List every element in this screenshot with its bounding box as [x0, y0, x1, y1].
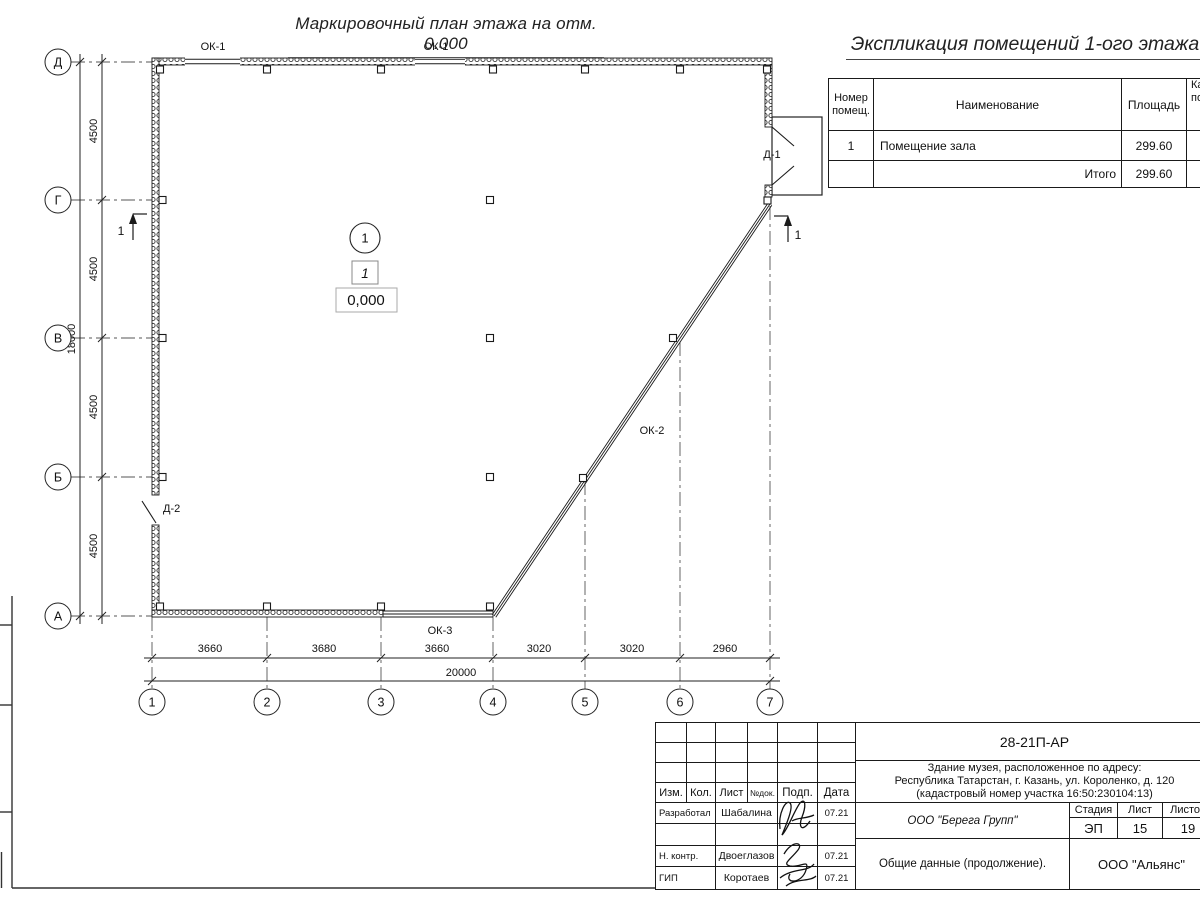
wall-right-upper — [765, 65, 772, 127]
tb-rev-cell — [687, 743, 716, 763]
room-type-mark: 1 — [361, 266, 369, 281]
expl-header-category-l2: помещения — [1191, 92, 1200, 105]
label-d2: Д-2 — [163, 503, 180, 515]
tb-contractor: ООО "Альянс" — [1070, 839, 1200, 889]
window-ok3-glazing — [383, 611, 493, 617]
door-leaves — [142, 127, 794, 523]
walls — [152, 58, 772, 617]
tb-rev-cell — [818, 763, 856, 783]
tb-header-izm: Изм. — [656, 783, 687, 803]
room-marker: 1 1 0,000 — [336, 223, 397, 312]
label-ok2: ОК-2 — [640, 425, 665, 437]
expl-total-category — [1187, 161, 1200, 187]
tb-object-address: Здание музея, расположенное по адресу: Р… — [856, 761, 1200, 803]
label-ok3: ОК-3 — [428, 625, 453, 637]
tb-name-developer: Шабалина — [716, 803, 778, 824]
dim-4500-4: 4500 — [88, 534, 100, 558]
tb-doc-number: 28-21П-АР — [856, 723, 1200, 761]
tb-rev-cell — [656, 723, 687, 743]
axis-col-3: 3 — [378, 696, 385, 710]
tb-rev-cell — [687, 723, 716, 743]
wall-right-stub — [765, 185, 772, 197]
tb-rev-cell — [818, 743, 856, 763]
axis-col-5: 5 — [582, 696, 589, 710]
tb-rev-cell — [716, 763, 748, 783]
drawing-sheet: { "plan": { "title": "Маркировочный план… — [0, 0, 1200, 900]
window-ok2-glazing — [492, 203, 772, 617]
expl-header-number: Номер помещ. — [829, 79, 874, 131]
tb-sheets-value: 19 — [1163, 818, 1200, 839]
expl-row1-area: 299.60 — [1122, 131, 1187, 161]
dim-3660-1: 3660 — [198, 643, 222, 655]
tb-sheet-value: 15 — [1118, 818, 1163, 839]
axis-col-1: 1 — [149, 696, 156, 710]
tb-name-ncontrol: Двоеглазов — [716, 846, 778, 867]
tb-date-ncontrol: 07.21 — [818, 846, 856, 867]
grid-axes-lines — [71, 62, 770, 689]
plan-title: Маркировочный план этажа на отм. 0.000 — [288, 14, 604, 58]
axis-col-2: 2 — [264, 696, 271, 710]
tb-rev-cell — [656, 763, 687, 783]
section-arrow-left — [129, 213, 137, 224]
expl-header-name: Наименование — [874, 79, 1122, 131]
expl-total-label: Итого — [874, 161, 1122, 187]
axis-col-6: 6 — [677, 696, 684, 710]
signature-ncontrol-gip — [776, 838, 820, 890]
dim-3020-1: 3020 — [527, 643, 551, 655]
expl-row1-category — [1187, 131, 1200, 161]
tb-date-gip: 07.21 — [818, 867, 856, 889]
wall-left-upper — [152, 58, 159, 495]
tb-header-kol: Кол. — [687, 783, 716, 803]
title-block: Изм. Кол. Лист №док. Подп. Дата Разработ… — [655, 722, 1200, 890]
opening-labels: ОК-1 ОК-1 ОК-2 ОК-3 Д-1 Д-2 — [163, 41, 781, 637]
section-labels: 1 1 — [118, 224, 802, 242]
tb-header-date: Дата — [818, 783, 856, 803]
expl-header-area: Площадь — [1122, 79, 1187, 131]
section-label-right: 1 — [795, 228, 802, 242]
room-elevation: 0,000 — [347, 292, 385, 309]
tb-doc-title: Общие данные (продолжение). — [856, 839, 1070, 889]
tb-address-line2: Республика Татарстан, г. Казань, ул. Кор… — [895, 775, 1175, 788]
tb-address-line1: Здание музея, расположенное по адресу: — [928, 762, 1142, 775]
tb-sheet-label: Лист — [1118, 803, 1163, 818]
tb-rev-cell — [778, 723, 818, 743]
dimension-lines — [76, 54, 780, 685]
expl-row1-name: Помещение зала — [874, 131, 1122, 161]
tb-rev-cell — [748, 723, 778, 743]
label-d1: Д-1 — [763, 149, 780, 161]
expl-header-number-l2: помещ. — [832, 105, 870, 118]
tb-stage-value: ЭП — [1070, 818, 1118, 839]
tb-date-empty — [818, 824, 856, 846]
tb-name-gip: Коротаев — [716, 867, 778, 889]
axis-row-b: Б — [54, 471, 62, 485]
tb-date-developer: 07.21 — [818, 803, 856, 824]
tb-rev-cell — [778, 763, 818, 783]
section-marks — [129, 213, 792, 242]
tb-rev-cell — [748, 743, 778, 763]
expl-row1-number: 1 — [829, 131, 874, 161]
expl-total-spacer — [829, 161, 874, 187]
column-markers — [157, 66, 772, 610]
dim-3680: 3680 — [312, 643, 336, 655]
axis-col-4: 4 — [490, 696, 497, 710]
dim-4500-1: 4500 — [88, 119, 100, 143]
dim-3020-2: 3020 — [620, 643, 644, 655]
dim-3660-2: 3660 — [425, 643, 449, 655]
tb-role-empty — [656, 824, 716, 846]
axis-row-v: В — [54, 332, 62, 346]
tb-rev-cell — [687, 763, 716, 783]
tb-rev-cell — [716, 743, 748, 763]
tb-rev-cell — [656, 743, 687, 763]
axis-row-a: А — [54, 610, 63, 624]
dim-2960: 2960 — [713, 643, 737, 655]
explication-table: Номер помещ. Наименование Площадь Катего… — [828, 78, 1200, 188]
tb-header-list: Лист — [716, 783, 748, 803]
expl-header-number-l1: Номер — [834, 92, 868, 105]
tb-address-line3: (кадастровый номер участка 16:50:230104:… — [916, 788, 1153, 801]
tb-role-gip: ГИП — [656, 867, 716, 889]
axis-row-g: Г — [55, 194, 62, 208]
dim-4500-2: 4500 — [88, 257, 100, 281]
tb-sheets-label: Листов — [1163, 803, 1200, 818]
expl-header-category-l1: Категория — [1191, 79, 1200, 92]
dim-20000: 20000 — [446, 667, 477, 679]
signature-developer — [772, 795, 820, 843]
section-arrow-right — [784, 215, 792, 226]
expl-header-category: Категория помещения — [1187, 79, 1200, 131]
label-ok1-left: ОК-1 — [201, 41, 226, 53]
dim-4500-3: 4500 — [88, 395, 100, 419]
section-label-left: 1 — [118, 224, 125, 238]
expl-total-area: 299.60 — [1122, 161, 1187, 187]
tb-rev-cell — [716, 723, 748, 743]
tb-rev-cell — [748, 763, 778, 783]
door-d2-leaf — [142, 501, 156, 523]
room-number: 1 — [361, 231, 368, 246]
tb-company: ООО "Берега Групп" — [856, 803, 1070, 839]
tb-role-developer: Разработал — [656, 803, 716, 824]
tb-stage-label: Стадия — [1070, 803, 1118, 818]
axis-col-7: 7 — [767, 696, 774, 710]
tb-rev-cell — [818, 723, 856, 743]
tb-rev-cell — [778, 743, 818, 763]
tb-name-empty — [716, 824, 778, 846]
wall-bottom — [152, 610, 383, 617]
tb-role-ncontrol: Н. контр. — [656, 846, 716, 867]
axis-row-d: Д — [54, 56, 63, 70]
explication-title: Экспликация помещений 1-ого этажа — [846, 33, 1200, 60]
